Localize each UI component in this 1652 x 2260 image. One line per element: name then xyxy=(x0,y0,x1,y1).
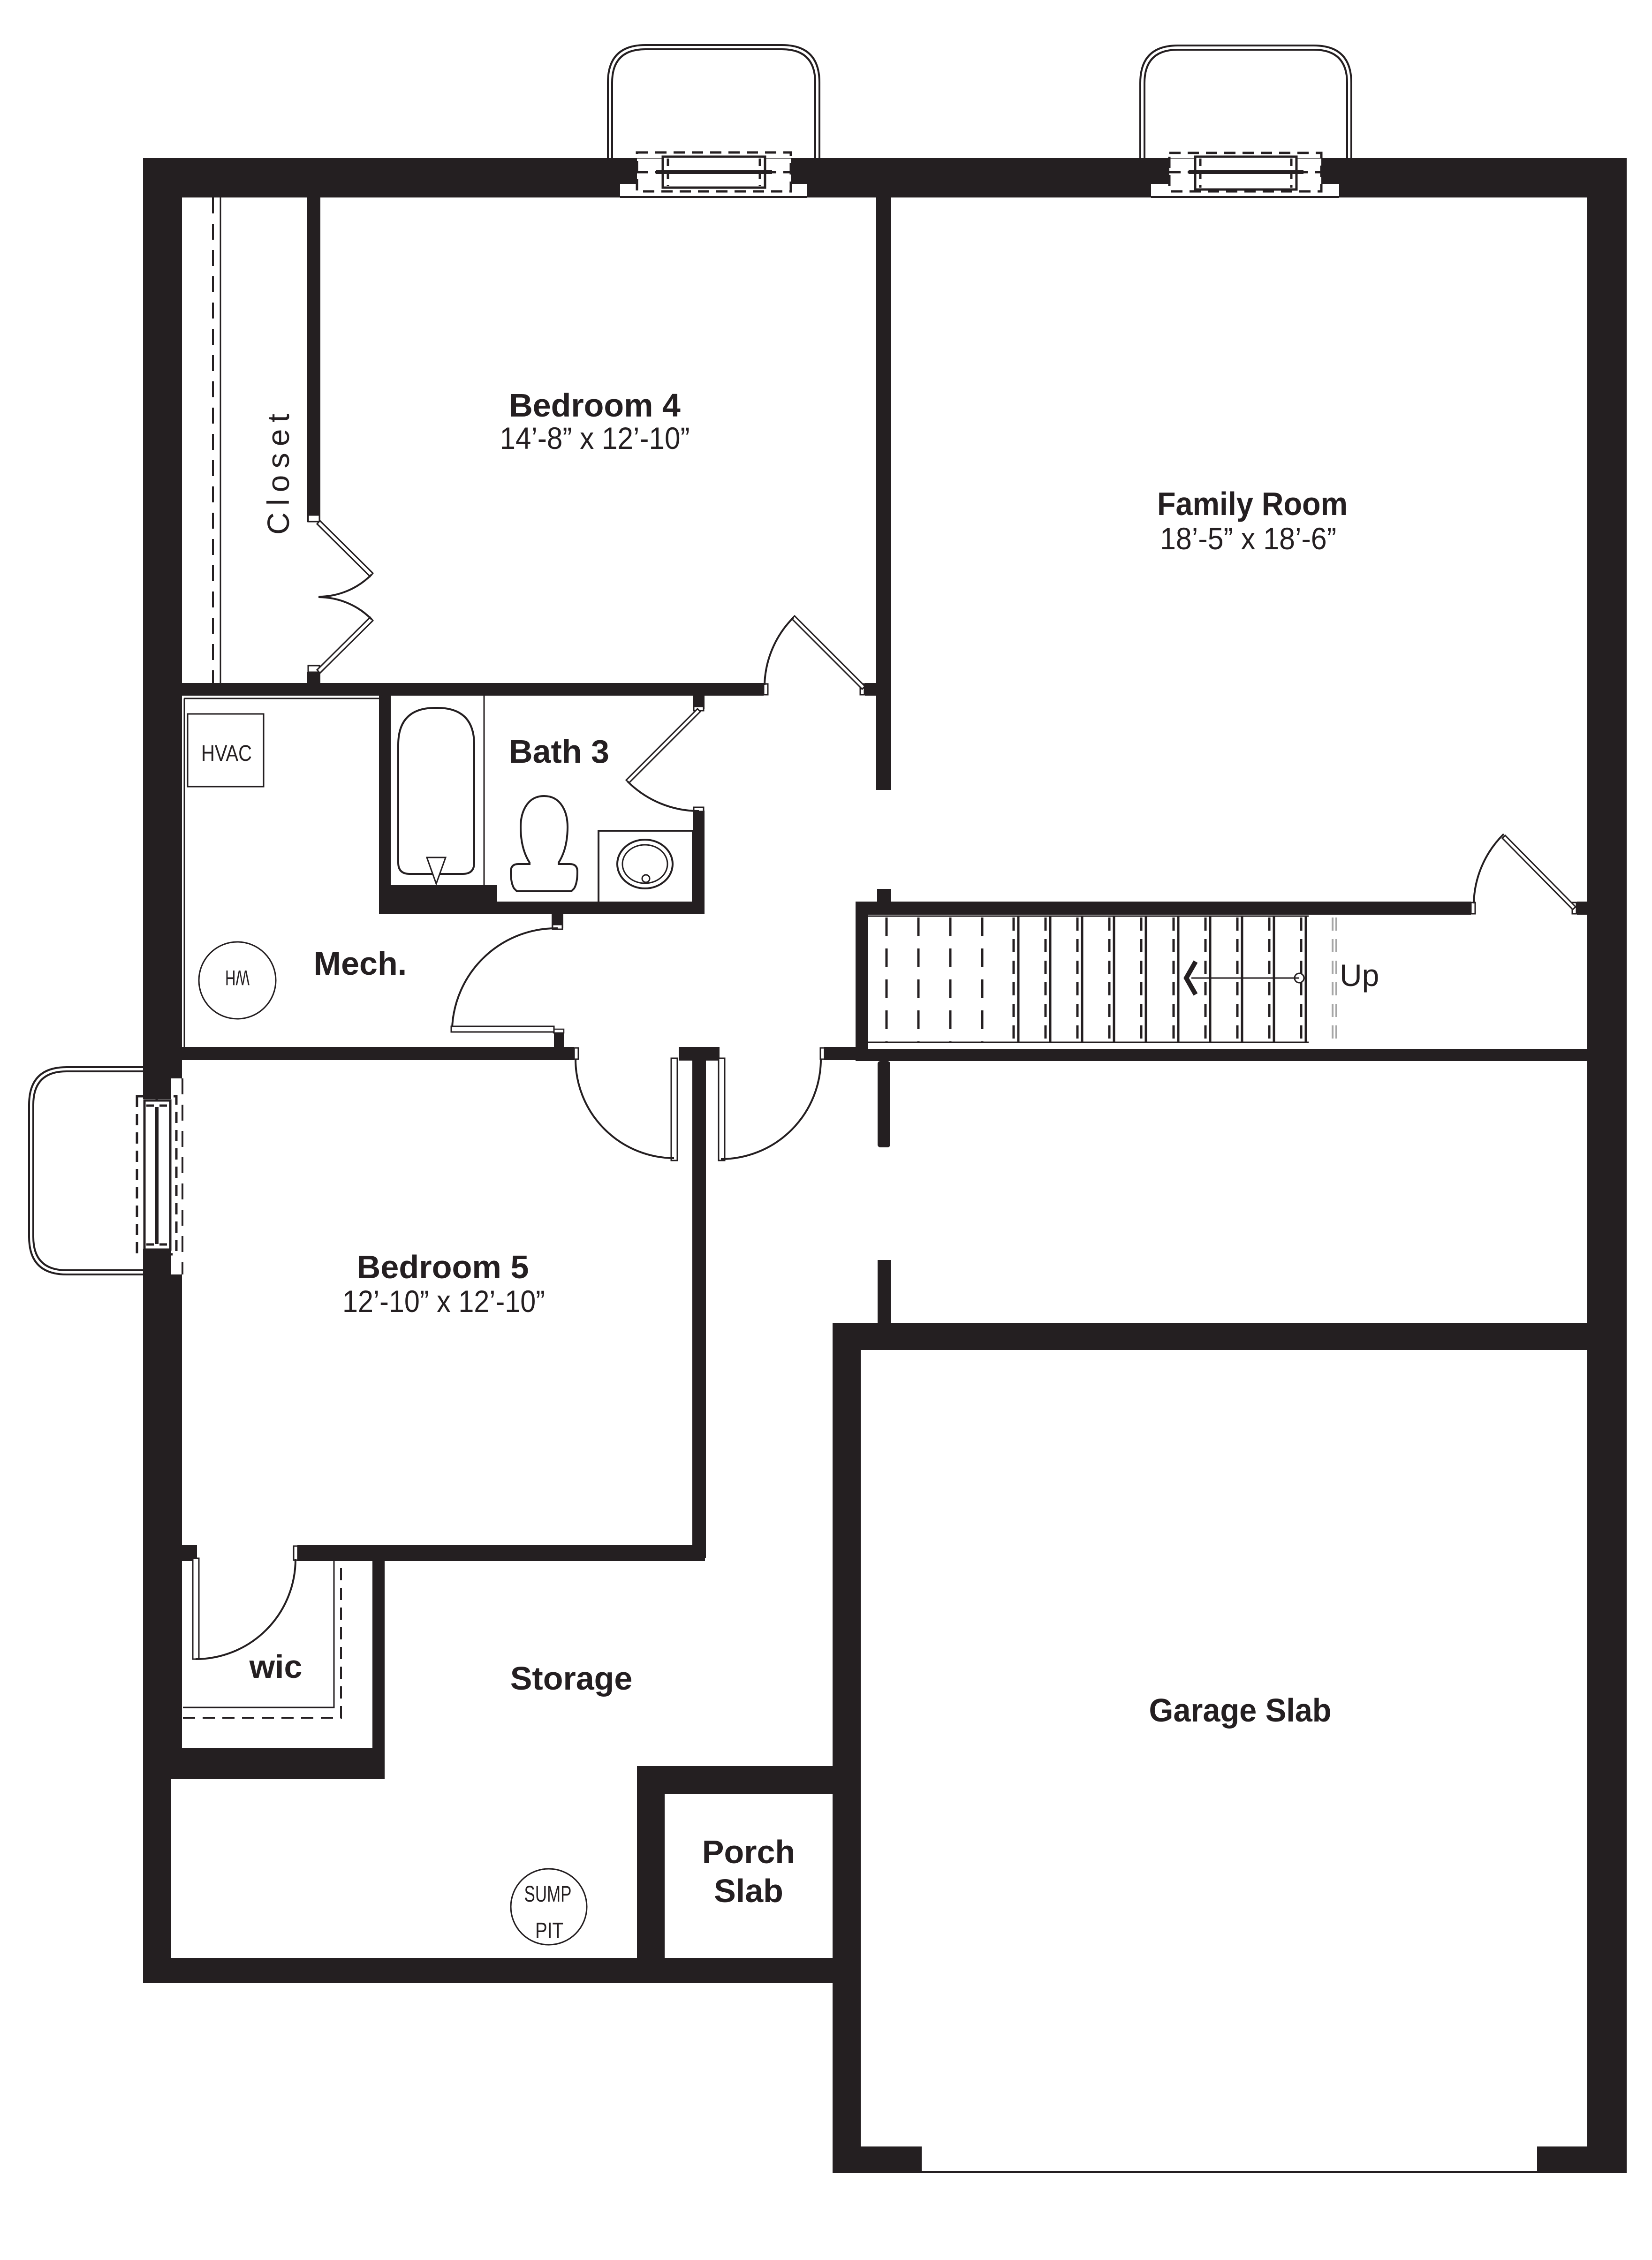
svg-text:18’-5” x 18’-6”: 18’-5” x 18’-6” xyxy=(1160,521,1336,556)
svg-text:PIT: PIT xyxy=(535,1919,563,1943)
svg-text:Bath 3: Bath 3 xyxy=(509,733,609,770)
svg-text:Family Room: Family Room xyxy=(1157,485,1348,522)
svg-text:14’-8” x 12’-10”: 14’-8” x 12’-10” xyxy=(500,421,690,455)
svg-text:Garage Slab: Garage Slab xyxy=(1149,1692,1332,1729)
svg-text:Up: Up xyxy=(1340,958,1379,993)
svg-text:Slab: Slab xyxy=(714,1873,783,1909)
svg-text:Bedroom 5: Bedroom 5 xyxy=(357,1249,529,1285)
svg-text:Closet: Closet xyxy=(261,414,296,535)
svg-text:WH: WH xyxy=(225,966,250,990)
svg-text:wic: wic xyxy=(249,1648,303,1685)
svg-text:HVAC: HVAC xyxy=(201,741,252,766)
svg-text:Porch: Porch xyxy=(702,1834,795,1870)
svg-text:Bedroom 4: Bedroom 4 xyxy=(509,387,681,424)
svg-text:SUMP: SUMP xyxy=(524,1882,572,1907)
svg-text:Mech.: Mech. xyxy=(314,945,407,982)
svg-text:Storage: Storage xyxy=(510,1660,633,1697)
svg-text:12’-10” x 12’-10”: 12’-10” x 12’-10” xyxy=(342,1284,545,1319)
